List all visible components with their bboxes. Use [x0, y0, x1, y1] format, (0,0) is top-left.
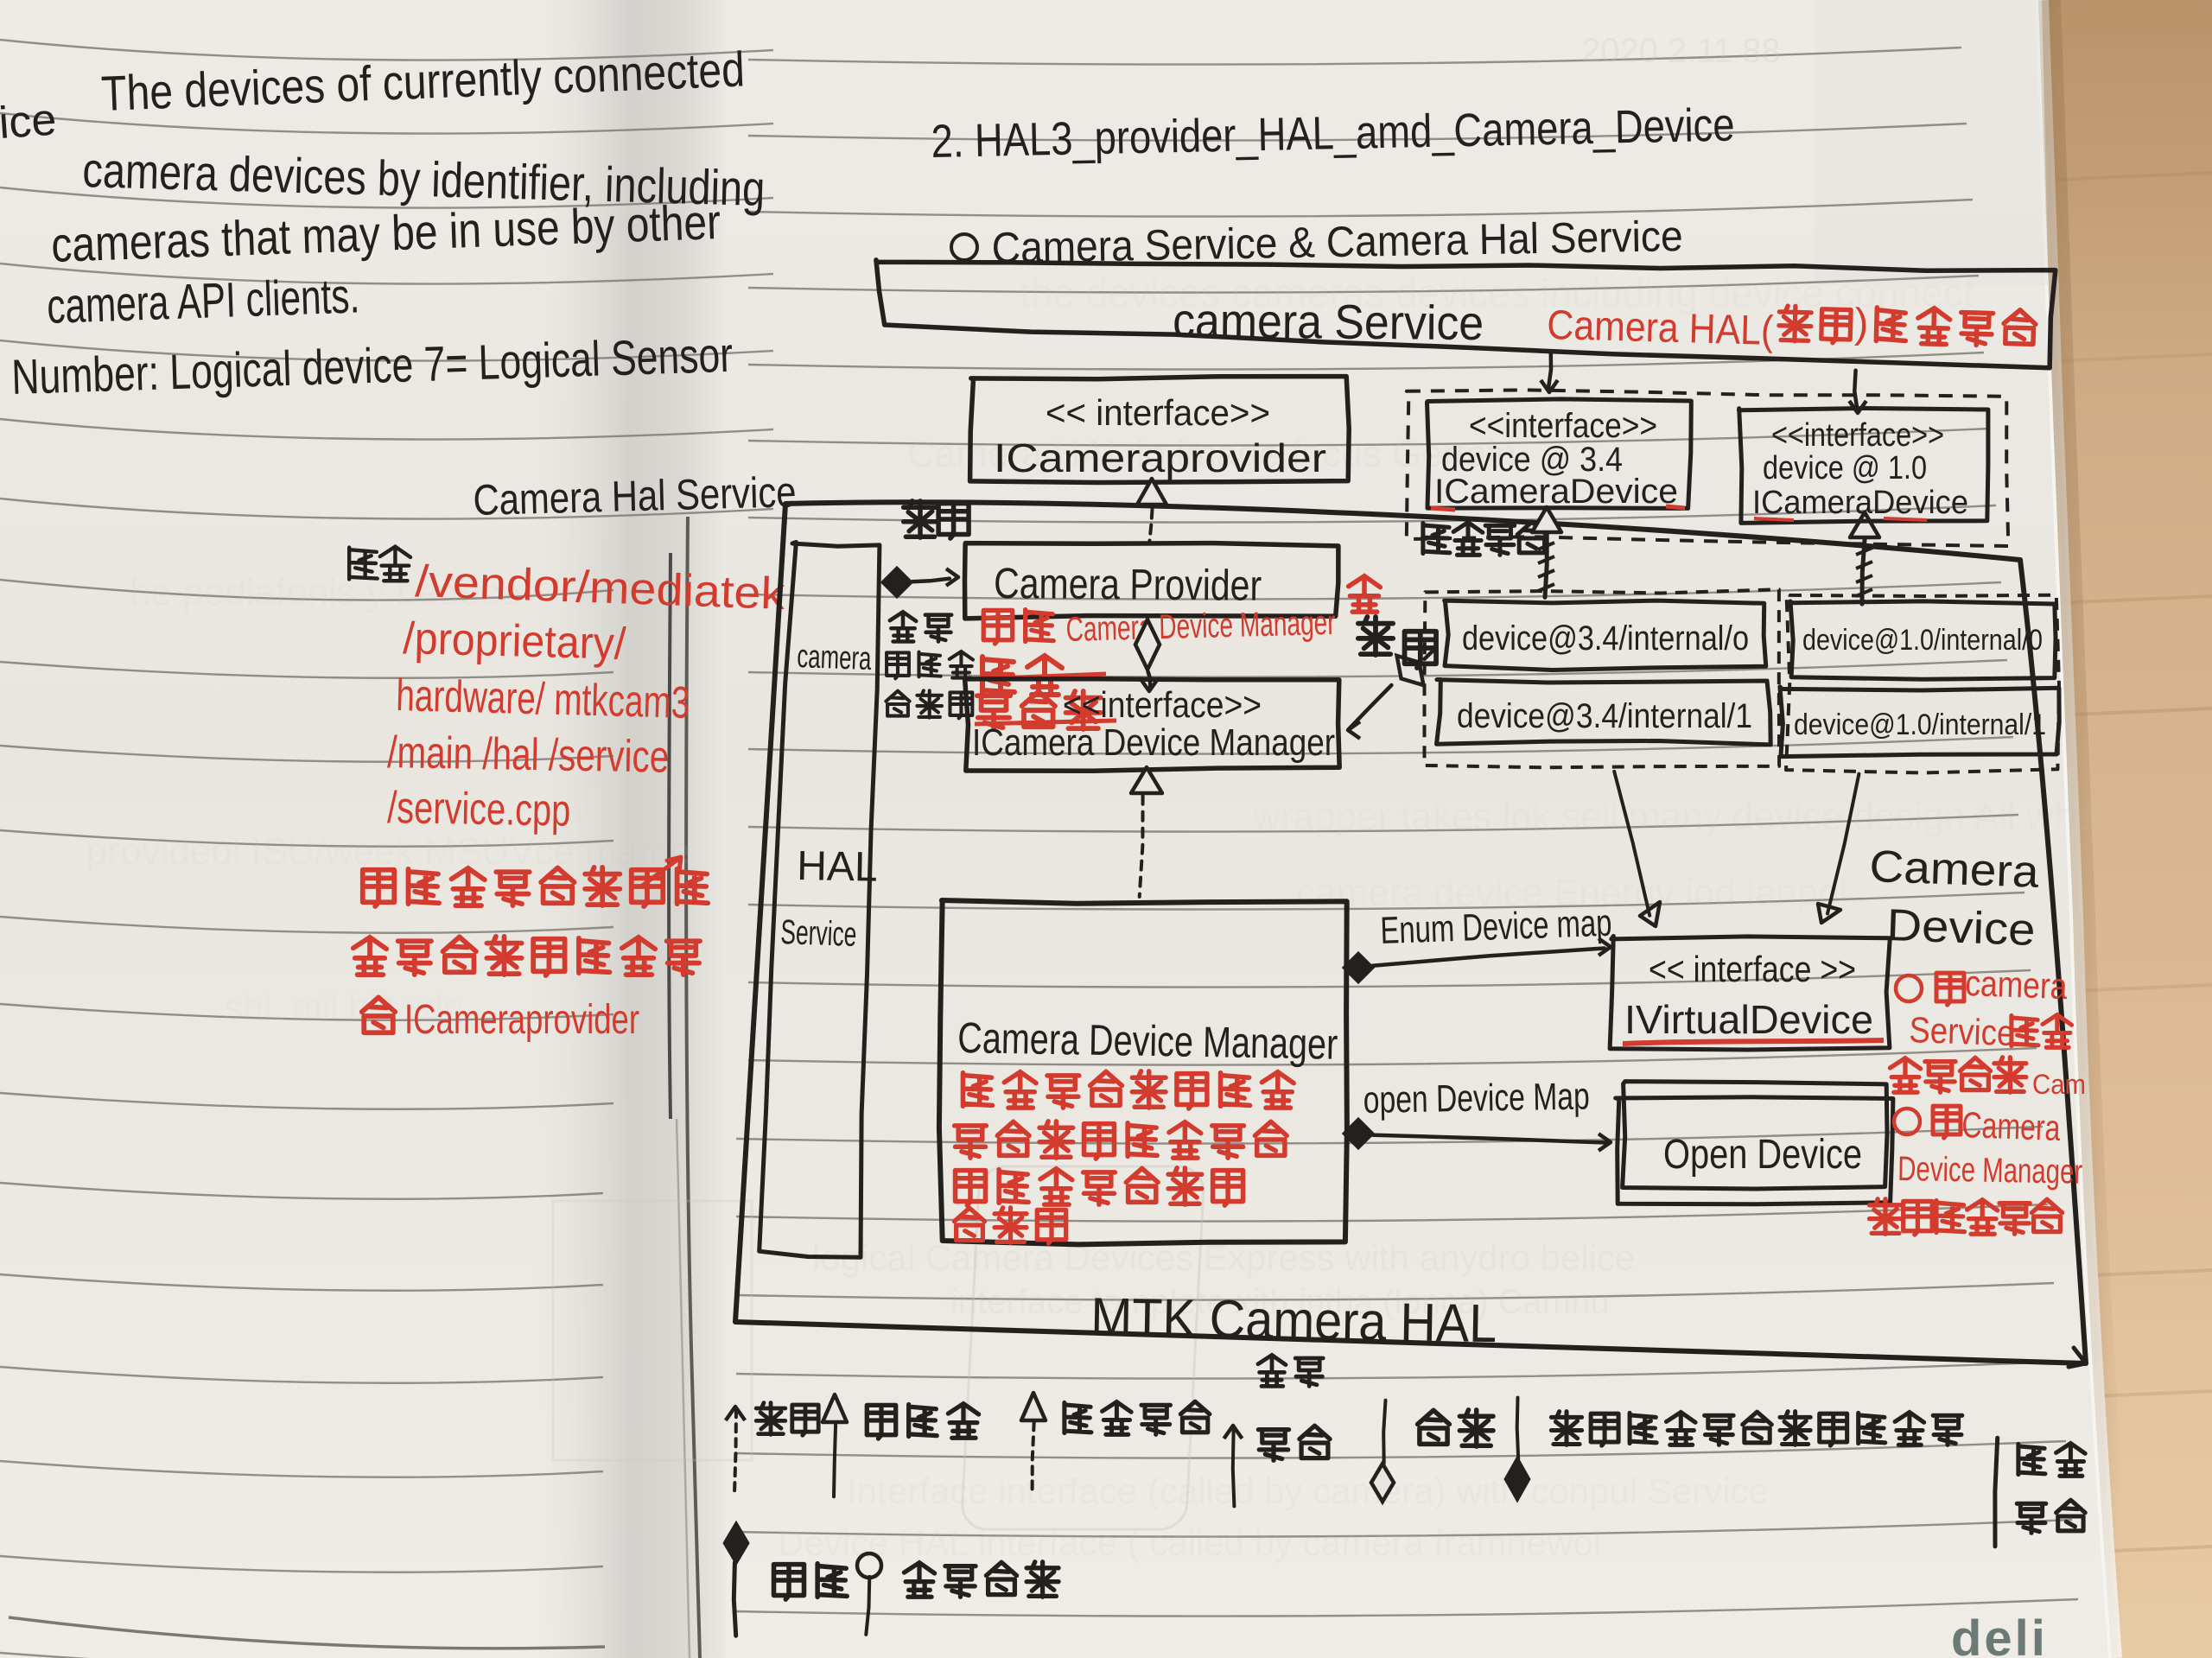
svg-text:): )	[1854, 301, 1869, 346]
svg-text:/service.cpp: /service.cpp	[387, 783, 571, 836]
svg-text:deli: deli	[1951, 1610, 2048, 1658]
svg-text:hardware/ mtkcam3: hardware/ mtkcam3	[396, 670, 690, 728]
svg-text:camera: camera	[797, 638, 873, 677]
svg-text:camera: camera	[1965, 962, 2069, 1007]
svg-text:Interface interface (called b: Interface interface (called by camera) w…	[847, 1471, 1769, 1511]
svg-text:ICamera Device Manager: ICamera Device Manager	[972, 721, 1335, 764]
svg-text:Service: Service	[1909, 1009, 2016, 1053]
svg-text:Camera Provider: Camera Provider	[994, 559, 1262, 610]
svg-text:<< interface>>: << interface>>	[1046, 392, 1270, 433]
svg-text:wrapper takes lok sell many d: wrapper takes lok sell many device desig…	[1252, 796, 2107, 838]
svg-text:Service: Service	[780, 913, 857, 954]
svg-text:Camera Device Manager: Camera Device Manager	[1065, 604, 1336, 649]
svg-text:Camera HAL(: Camera HAL(	[1547, 302, 1774, 354]
svg-text:ICameraDevice: ICameraDevice	[1434, 473, 1678, 511]
svg-text:Camera Device Manager: Camera Device Manager	[957, 1013, 1338, 1069]
svg-text:Device: Device	[1886, 900, 2037, 956]
svg-text:ICameraprovider: ICameraprovider	[994, 435, 1326, 480]
svg-text:/proprietary/: /proprietary/	[403, 613, 627, 670]
svg-text:Device Manager: Device Manager	[1897, 1150, 2083, 1191]
svg-text:camera API clients.: camera API clients.	[46, 268, 360, 334]
svg-text:open Device Map: open Device Map	[1363, 1075, 1590, 1121]
svg-text:<<interface>>: <<interface>>	[1771, 417, 1944, 454]
svg-text:ice: ice	[0, 94, 58, 148]
svg-text:provideol ISU/week MSUVce m: provideol ISU/week MSUVce mame	[86, 830, 690, 873]
svg-text:IVirtualDevice: IVirtualDevice	[1624, 997, 1873, 1042]
svg-text:Camera Hal Service: Camera Hal Service	[473, 467, 797, 524]
svg-text:Camera: Camera	[1869, 842, 2040, 898]
svg-text:device@3.4/internal/1: device@3.4/internal/1	[1457, 697, 1752, 735]
svg-text:Camera: Camera	[1961, 1104, 2062, 1148]
svg-text:device@3.4/internal/o: device@3.4/internal/o	[1462, 619, 1749, 657]
svg-text:<<interface>>: <<interface>>	[1469, 407, 1657, 445]
svg-text:<< interface >>: << interface >>	[1649, 949, 1856, 989]
svg-text:camera Service: camera Service	[1173, 293, 1484, 350]
svg-text:Cam: Cam	[2032, 1069, 2086, 1100]
svg-text:HAL: HAL	[797, 843, 878, 891]
svg-text:ICameraDevice: ICameraDevice	[1752, 485, 1968, 521]
svg-text:MTK Camera HAL: MTK Camera HAL	[1090, 1287, 1497, 1354]
svg-text:device@1.0/internal/0: device@1.0/internal/0	[1802, 624, 2043, 657]
svg-text:ICameraprovider: ICameraprovider	[404, 997, 639, 1043]
svg-text:Open Device: Open Device	[1663, 1132, 1862, 1178]
svg-text:device @ 1.0: device @ 1.0	[1763, 450, 1927, 486]
svg-text:2020 2.11 88: 2020 2.11 88	[1581, 32, 1781, 70]
svg-text:Enum Device map: Enum Device map	[1380, 902, 1613, 952]
svg-text:<<interface>>: <<interface>>	[1063, 684, 1262, 725]
svg-text:Device HAL interface ( called: Device HAL interface ( called by camera …	[778, 1522, 1601, 1563]
svg-text:device@1.0/internal/1: device@1.0/internal/1	[1794, 708, 2046, 741]
svg-text:/main /hal /service: /main /hal /service	[387, 727, 670, 783]
